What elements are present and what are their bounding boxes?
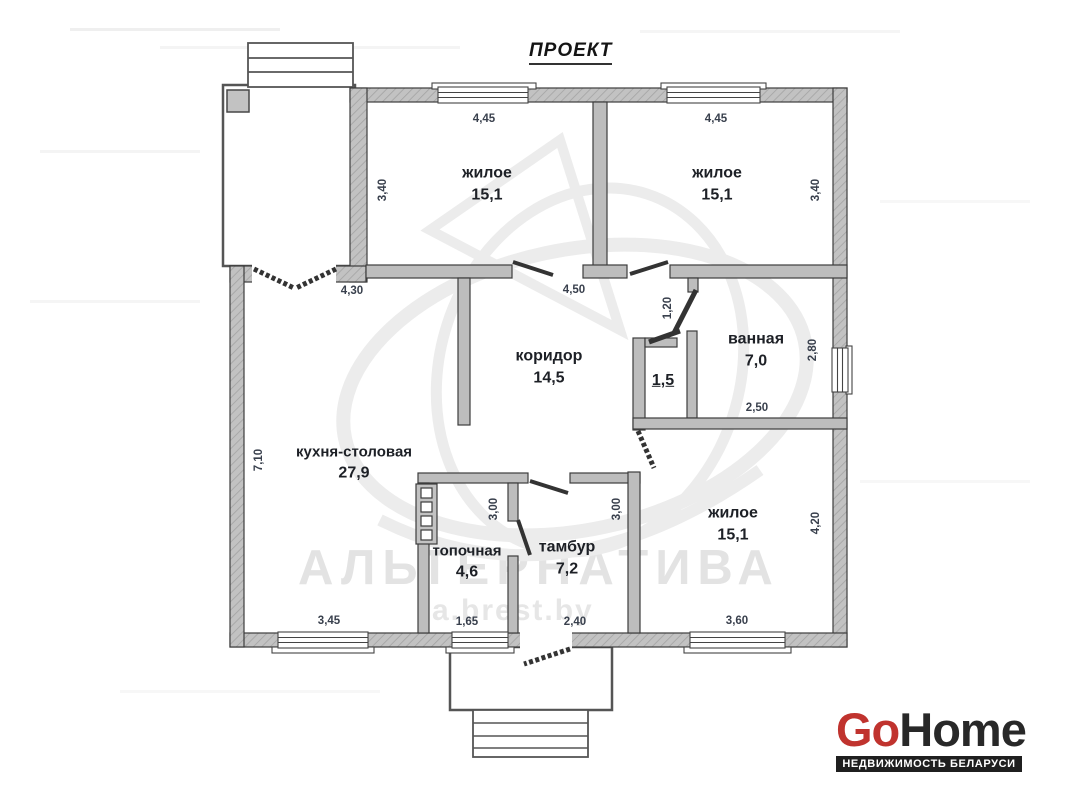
entrance-door-opening	[520, 631, 572, 649]
dimension-label: 3,45	[318, 615, 340, 627]
room-label-kitchen: кухня-столовая 27,9	[296, 441, 412, 484]
wall-kitchen-corridor	[458, 278, 470, 425]
dimension-label: 4,50	[563, 284, 585, 296]
dimension-label: 2,40	[564, 616, 586, 628]
dimension-label: 2,50	[746, 402, 768, 414]
boiler-appliance	[416, 484, 437, 544]
wall-left-lower	[230, 266, 244, 647]
window-living-bottom	[690, 632, 785, 648]
terrace-stove	[227, 90, 249, 112]
window-living-top-right	[667, 87, 760, 103]
room-label-corridor: коридор 14,5	[516, 346, 583, 391]
dimension-label: 2,80	[807, 339, 819, 361]
window-living-top-left	[438, 87, 528, 103]
dimension-label: 3,40	[810, 179, 822, 201]
floor-plan-drawing	[0, 0, 1068, 800]
wall-top	[350, 88, 847, 102]
dimension-label: 1,20	[662, 297, 674, 319]
wall-vestibule-right	[628, 472, 640, 633]
room-label-vestibule: тамбур 7,2	[539, 537, 596, 582]
room-label-living-top-right: жилое 15,1	[692, 163, 742, 208]
dimension-label: 4,45	[473, 113, 495, 125]
dimension-label: 7,10	[253, 449, 265, 471]
logo-tagline: НЕДВИЖИМОСТЬ БЕЛАРУСИ	[836, 756, 1022, 772]
door-living-top-right	[630, 262, 668, 274]
logo-home: Home	[899, 703, 1026, 756]
room-label-living-bottom: жилое 15,1	[708, 503, 758, 548]
room-label-boiler: топочная 4,6	[432, 540, 501, 583]
wall-left-upper	[350, 88, 367, 282]
wall-wc-left	[633, 338, 645, 430]
dimension-label: 3,40	[377, 179, 389, 201]
window-kitchen	[278, 632, 368, 648]
window-boiler	[452, 632, 508, 648]
terrace	[223, 85, 355, 266]
dimension-label: 4,45	[705, 113, 727, 125]
dimension-label: 3,60	[726, 615, 748, 627]
door-bathroom	[674, 290, 696, 333]
gohome-logo: GoHome НЕДВИЖИМОСТЬ БЕЛАРУСИ	[836, 706, 1022, 772]
door-living-bottom	[638, 431, 654, 468]
gohome-logo-text: GoHome	[836, 706, 1022, 753]
terrace-steps	[248, 43, 353, 87]
dimension-label: 4,30	[341, 285, 363, 297]
dimension-label: 3,00	[488, 498, 500, 520]
wall-between-top-rooms	[593, 102, 607, 272]
dimension-label: 3,00	[611, 498, 623, 520]
room-label-wc: 1,5	[652, 370, 674, 392]
room-label-bathroom: ванная 7,0	[728, 329, 784, 374]
dimension-label: 4,20	[810, 512, 822, 534]
window-bathroom	[832, 348, 848, 392]
dimension-label: 1,65	[456, 616, 478, 628]
page-title: ПРОЕКТ	[529, 40, 612, 65]
door-vestibule	[530, 481, 568, 493]
room-label-living-top-left: жилое 15,1	[462, 163, 512, 208]
logo-go: Go	[836, 703, 899, 756]
floor-plan-page: АЛЬТЕРНАТИВА a.brest.by	[0, 0, 1068, 800]
porch-steps	[473, 710, 588, 757]
wall-bathroom-bottom	[633, 418, 847, 429]
wall-wc-bathroom	[687, 331, 697, 418]
